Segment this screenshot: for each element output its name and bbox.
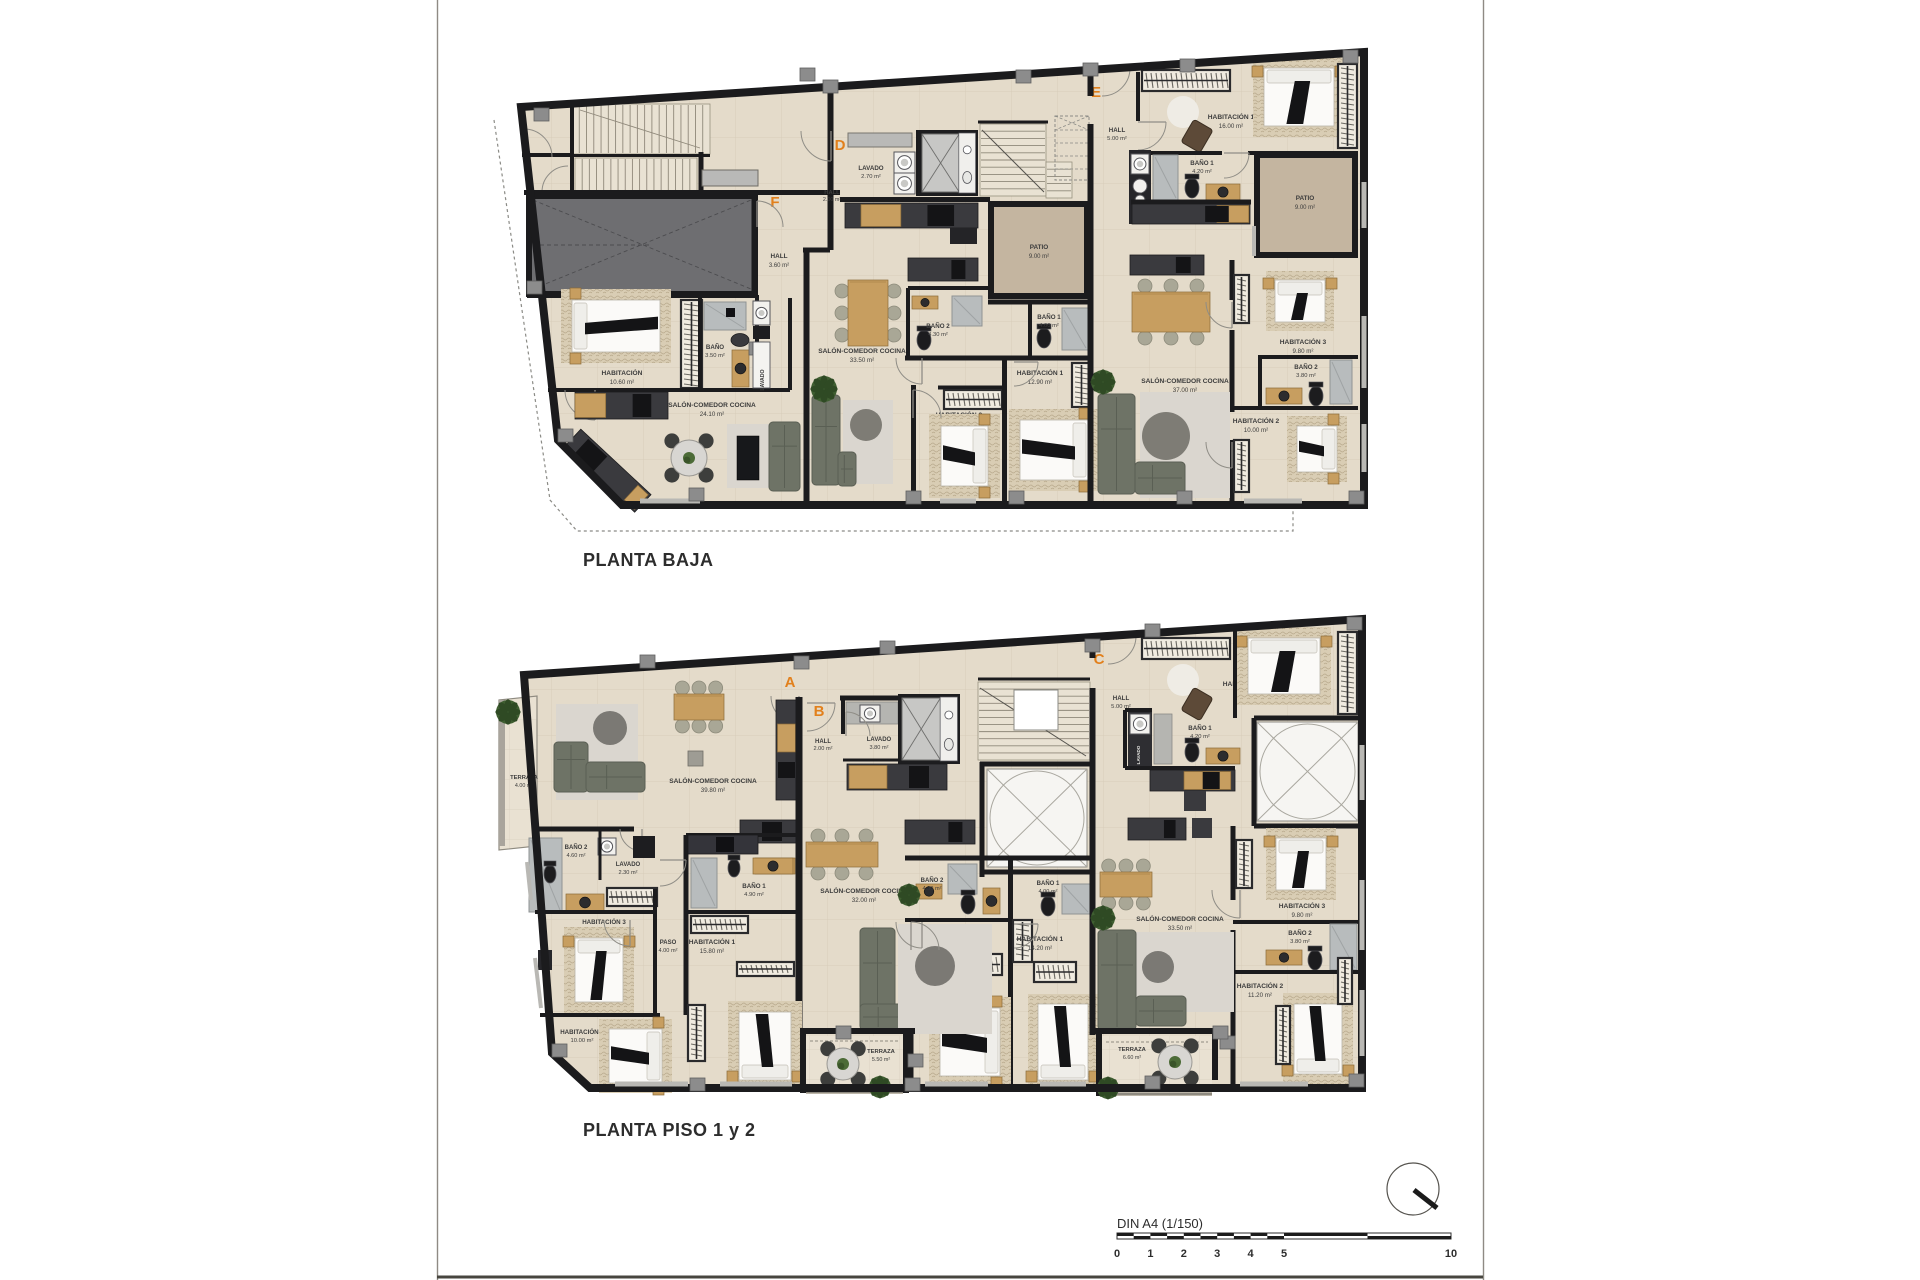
svg-text:4: 4: [1248, 1248, 1255, 1260]
svg-text:BAÑO 2: BAÑO 2: [1288, 930, 1312, 937]
svg-text:3.80 m²: 3.80 m²: [870, 745, 889, 751]
svg-text:HABITACIÓN 2: HABITACIÓN 2: [1237, 981, 1284, 990]
svg-text:BAÑO 1: BAÑO 1: [1037, 880, 1060, 887]
svg-text:D: D: [835, 137, 846, 154]
svg-text:BAÑO 1: BAÑO 1: [742, 883, 766, 890]
svg-text:HABITACIÓN 1: HABITACIÓN 1: [1208, 112, 1255, 121]
svg-text:SALÓN-COMEDOR COCINA: SALÓN-COMEDOR COCINA: [668, 400, 756, 409]
svg-text:HABITACIÓN 3: HABITACIÓN 3: [1280, 337, 1327, 346]
svg-text:HALL: HALL: [824, 190, 840, 196]
svg-text:2.00 m²: 2.00 m²: [823, 197, 841, 203]
svg-text:PATIO: PATIO: [1296, 195, 1315, 202]
svg-text:LAVADO: LAVADO: [616, 862, 641, 868]
svg-text:9.00 m²: 9.00 m²: [1295, 205, 1315, 211]
svg-text:4.20 m²: 4.20 m²: [1190, 734, 1210, 740]
svg-text:SALÓN-COMEDOR COCINA: SALÓN-COMEDOR COCINA: [1141, 376, 1229, 385]
svg-text:4.00 m²: 4.00 m²: [1039, 889, 1058, 895]
svg-text:3.80 m²: 3.80 m²: [1290, 939, 1310, 945]
svg-text:10.00 m²: 10.00 m²: [1244, 427, 1268, 434]
svg-text:2.70 m²: 2.70 m²: [861, 174, 881, 180]
svg-text:PASO: PASO: [660, 940, 677, 946]
svg-text:SALÓN-COMEDOR COCINA: SALÓN-COMEDOR COCINA: [818, 346, 906, 355]
svg-text:PLANTA PISO 1 y 2: PLANTA PISO 1 y 2: [583, 1120, 756, 1140]
svg-text:HALL: HALL: [815, 739, 831, 745]
svg-text:TERRAZA: TERRAZA: [1118, 1047, 1147, 1053]
svg-text:32.00 m²: 32.00 m²: [852, 897, 876, 904]
svg-text:1: 1: [1147, 1248, 1153, 1260]
svg-text:4.00 m²: 4.00 m²: [659, 948, 678, 954]
svg-text:LAVADO: LAVADO: [858, 165, 883, 172]
svg-text:33.50 m²: 33.50 m²: [850, 357, 874, 364]
svg-text:LAVADO: LAVADO: [760, 369, 766, 390]
svg-text:TERRAZA: TERRAZA: [867, 1049, 896, 1055]
svg-text:HABITACIÓN 3: HABITACIÓN 3: [1279, 901, 1326, 910]
svg-text:B: B: [814, 703, 825, 720]
svg-text:5.50 m²: 5.50 m²: [872, 1057, 890, 1063]
svg-text:LAVADO: LAVADO: [1136, 745, 1141, 764]
svg-text:24.10 m²: 24.10 m²: [700, 411, 724, 418]
svg-text:9.80 m²: 9.80 m²: [1293, 348, 1314, 355]
svg-text:BAÑO 1: BAÑO 1: [1037, 314, 1061, 321]
svg-text:2.30 m²: 2.30 m²: [619, 870, 638, 876]
svg-text:BAÑO 2: BAÑO 2: [1294, 364, 1318, 371]
svg-text:39.80 m²: 39.80 m²: [701, 787, 725, 794]
svg-text:BAÑO 2: BAÑO 2: [921, 877, 944, 884]
svg-text:BAÑO 1: BAÑO 1: [1190, 160, 1214, 167]
svg-text:12.90 m²: 12.90 m²: [1028, 379, 1052, 386]
svg-text:0: 0: [1114, 1248, 1120, 1260]
svg-text:16.00 m²: 16.00 m²: [1219, 123, 1243, 130]
svg-text:PATIO: PATIO: [1030, 244, 1049, 251]
svg-text:HABITACIÓN: HABITACIÓN: [602, 368, 643, 377]
svg-text:2.00 m²: 2.00 m²: [814, 746, 833, 752]
svg-text:HABITACIÓN 1: HABITACIÓN 1: [689, 937, 736, 946]
svg-text:PLANTA BAJA: PLANTA BAJA: [583, 550, 714, 570]
svg-text:10.00 m²: 10.00 m²: [571, 1038, 594, 1044]
svg-text:9.00 m²: 9.00 m²: [1029, 254, 1049, 260]
svg-text:SALÓN-COMEDOR COCINA: SALÓN-COMEDOR COCINA: [1136, 914, 1224, 923]
svg-text:3.80 m²: 3.80 m²: [1296, 373, 1316, 379]
svg-text:BAÑO 1: BAÑO 1: [1188, 725, 1212, 732]
svg-text:3.50 m²: 3.50 m²: [705, 353, 725, 359]
svg-text:HALL: HALL: [1109, 127, 1126, 134]
svg-text:BAÑO 2: BAÑO 2: [565, 844, 588, 851]
svg-text:11.20 m²: 11.20 m²: [1248, 992, 1272, 999]
svg-text:14.20 m²: 14.20 m²: [1028, 945, 1052, 952]
svg-text:2: 2: [1181, 1248, 1187, 1260]
svg-text:HABITACIÓN 2: HABITACIÓN 2: [1233, 416, 1280, 425]
svg-text:4.90 m²: 4.90 m²: [744, 892, 764, 898]
svg-text:A: A: [785, 674, 796, 691]
svg-text:HABITACIÓN 1: HABITACIÓN 1: [1017, 934, 1064, 943]
svg-text:4.60 m²: 4.60 m²: [567, 853, 586, 859]
svg-text:33.50 m²: 33.50 m²: [1168, 925, 1192, 932]
svg-text:HALL: HALL: [770, 253, 787, 260]
svg-text:SALÓN-COMEDOR COCINA: SALÓN-COMEDOR COCINA: [820, 886, 908, 895]
svg-text:5: 5: [1281, 1248, 1287, 1260]
svg-text:4.20 m²: 4.20 m²: [1192, 169, 1212, 175]
svg-text:9.80 m²: 9.80 m²: [1292, 912, 1313, 919]
svg-text:3: 3: [1214, 1248, 1220, 1260]
svg-text:3.60 m²: 3.60 m²: [769, 263, 789, 269]
svg-text:SALÓN-COMEDOR COCINA: SALÓN-COMEDOR COCINA: [669, 776, 757, 785]
svg-text:10: 10: [1445, 1248, 1457, 1260]
svg-text:6.60 m²: 6.60 m²: [1123, 1055, 1141, 1061]
svg-text:5.00 m²: 5.00 m²: [1107, 136, 1127, 142]
svg-text:BAÑO: BAÑO: [706, 344, 724, 351]
svg-text:BAÑO 2: BAÑO 2: [926, 323, 950, 330]
svg-text:LAVADO: LAVADO: [867, 737, 892, 743]
svg-text:HABITACIÓN 2: HABITACIÓN 2: [560, 1028, 604, 1036]
svg-text:10.60 m²: 10.60 m²: [610, 379, 634, 386]
svg-text:HABITACIÓN 1: HABITACIÓN 1: [1017, 368, 1064, 377]
svg-text:4.30 m²: 4.30 m²: [928, 332, 948, 338]
svg-text:4.00 m²: 4.00 m²: [1039, 323, 1059, 329]
svg-text:15.80 m²: 15.80 m²: [700, 948, 724, 955]
svg-text:4.30 m²: 4.30 m²: [923, 886, 942, 892]
svg-text:HALL: HALL: [1113, 695, 1130, 702]
svg-text:DIN A4 (1/150): DIN A4 (1/150): [1117, 1216, 1203, 1231]
